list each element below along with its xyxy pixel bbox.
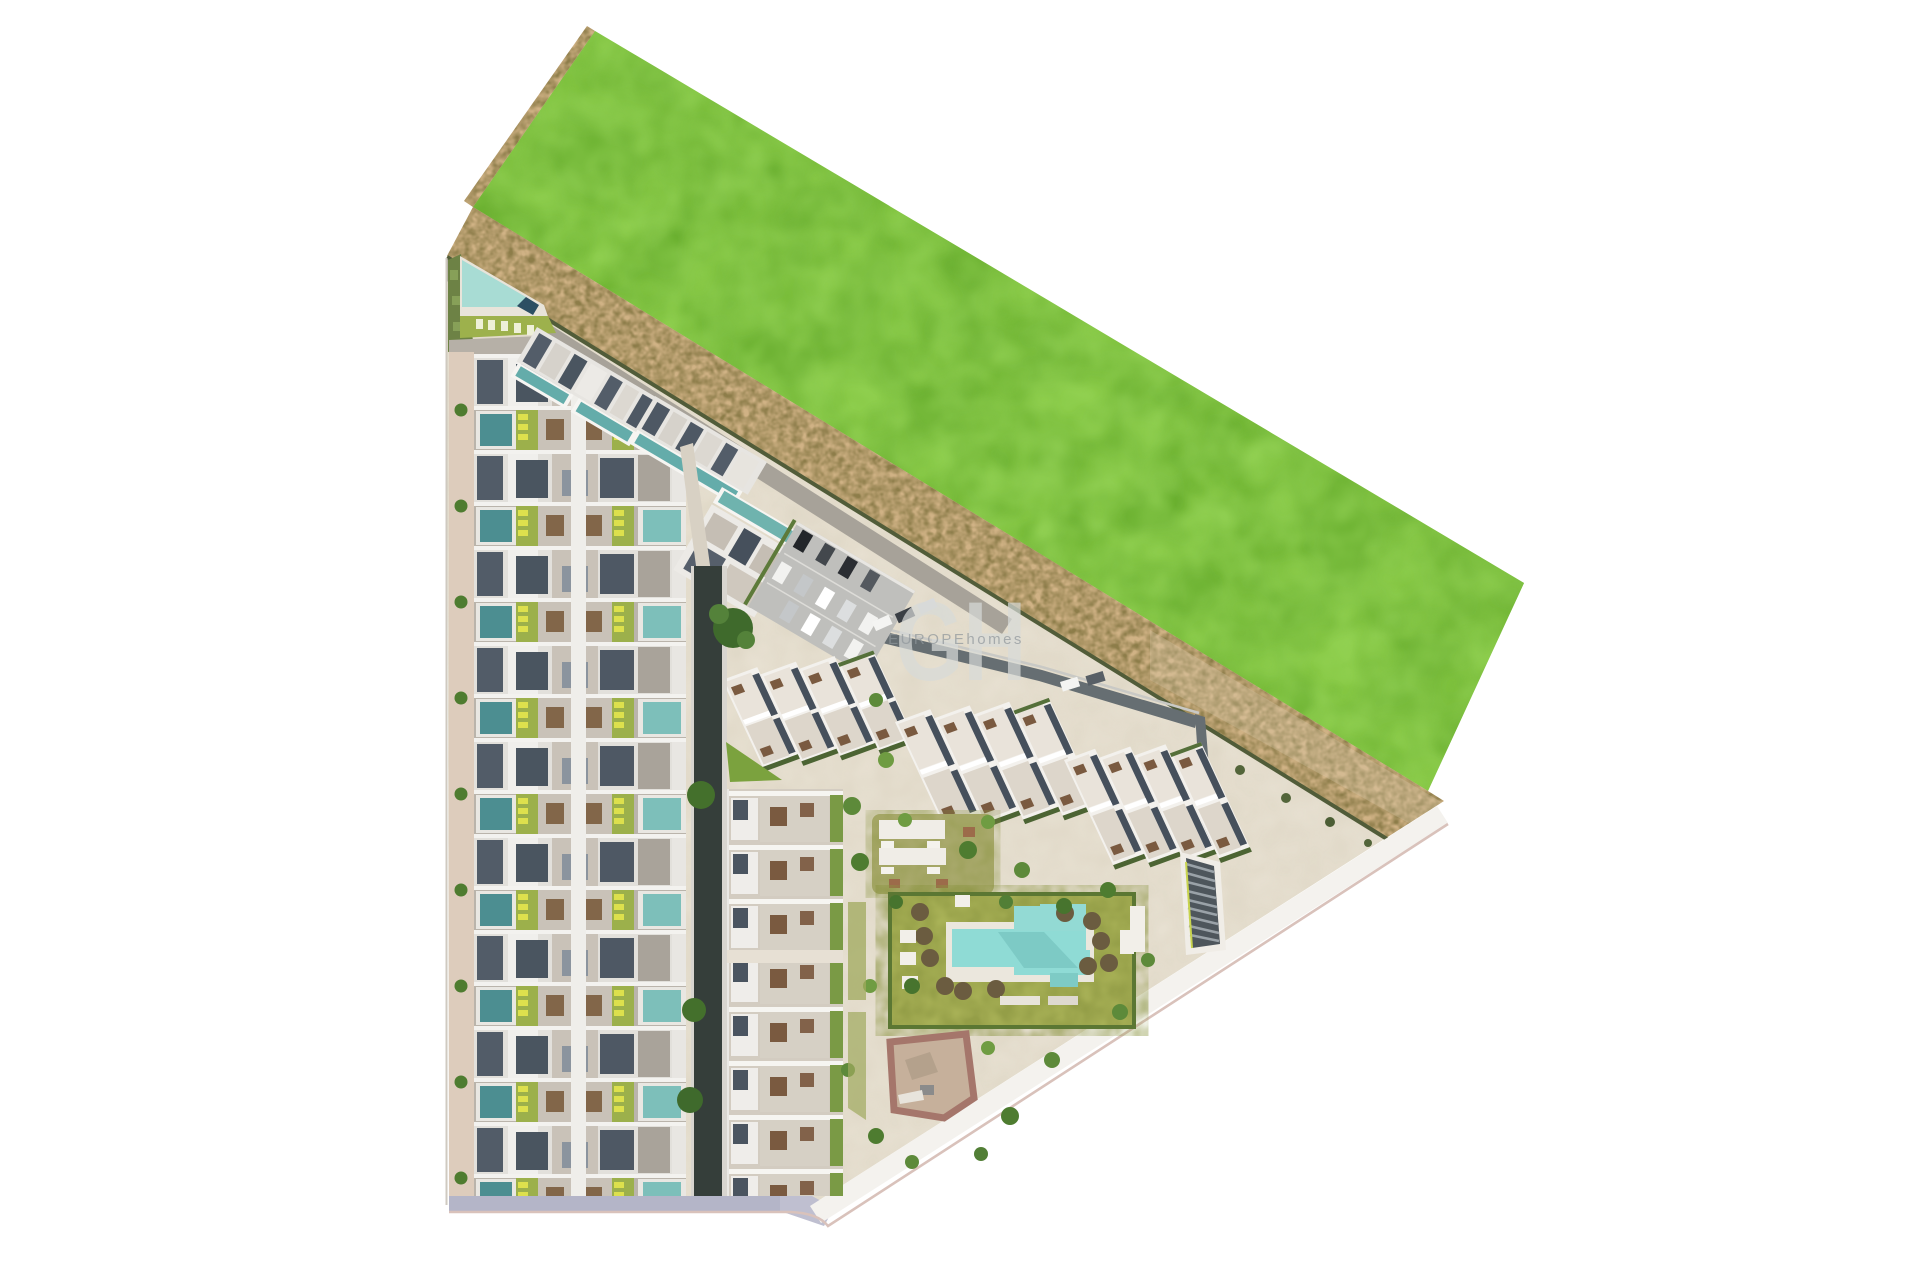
svg-text:EUROPEhomes: EUROPEhomes	[888, 631, 1024, 648]
